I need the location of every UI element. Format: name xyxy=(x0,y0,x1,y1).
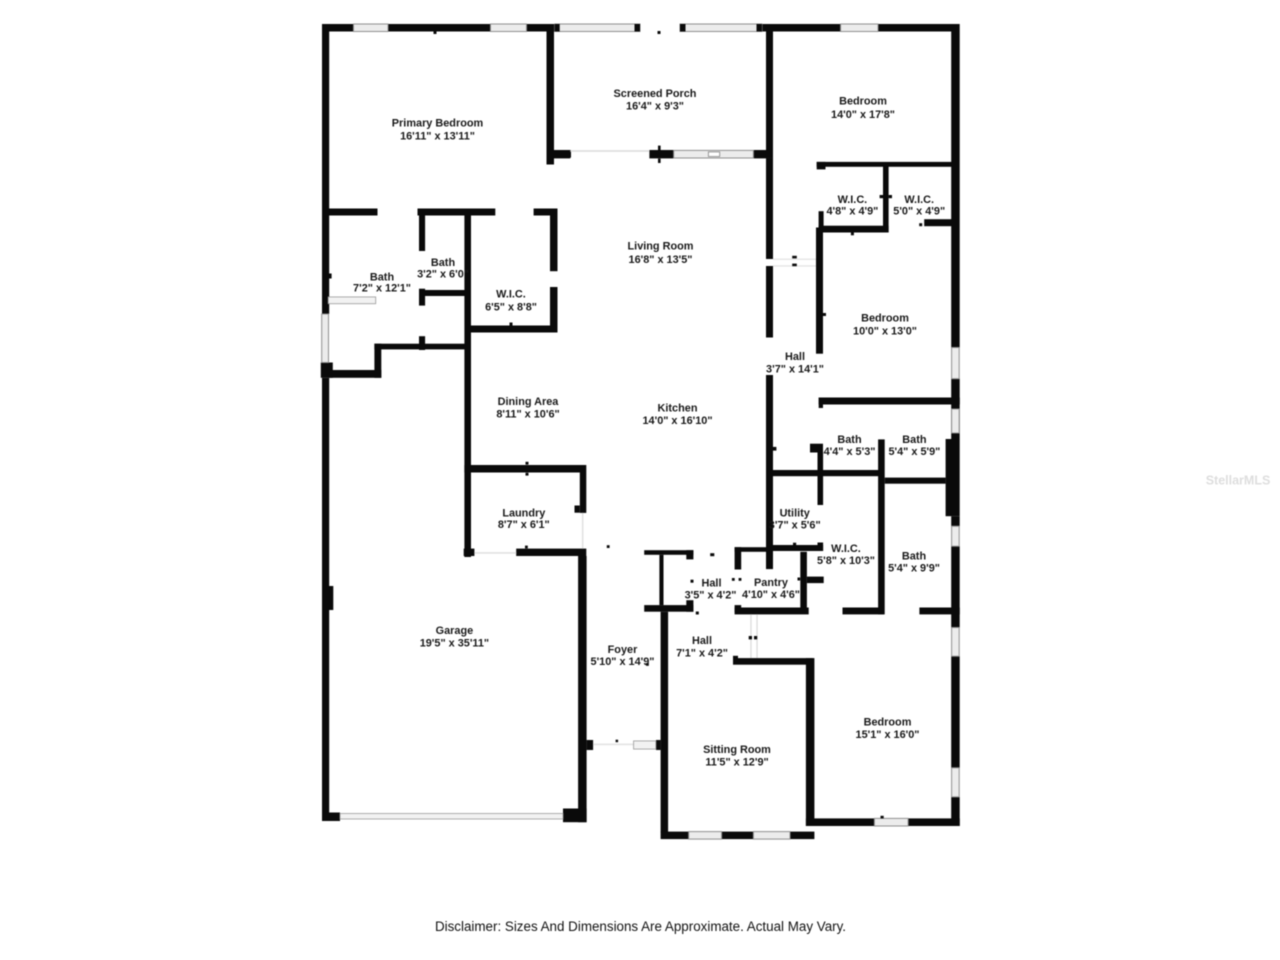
svg-text:Kitchen: Kitchen xyxy=(658,402,698,414)
svg-text:8'7" x 6'1": 8'7" x 6'1" xyxy=(498,519,550,531)
svg-text:5'4" x 9'9": 5'4" x 9'9" xyxy=(888,563,940,575)
svg-text:7'2" x 12'1": 7'2" x 12'1" xyxy=(353,283,411,295)
svg-text:14'0" x 17'8": 14'0" x 17'8" xyxy=(831,109,895,121)
svg-text:Screened Porch: Screened Porch xyxy=(614,88,697,100)
svg-text:5'0" x 4'9": 5'0" x 4'9" xyxy=(893,206,945,218)
svg-text:Bath: Bath xyxy=(431,257,455,269)
svg-text:Hall: Hall xyxy=(702,578,722,590)
svg-text:5'10" x 14'9": 5'10" x 14'9" xyxy=(591,656,655,668)
svg-text:Sitting Room: Sitting Room xyxy=(703,744,771,756)
svg-text:Bath: Bath xyxy=(902,434,926,446)
svg-text:Bath: Bath xyxy=(902,551,926,563)
svg-text:W.I.C.: W.I.C. xyxy=(831,543,861,555)
svg-text:W.I.C.: W.I.C. xyxy=(904,194,934,206)
svg-text:16'8" x 13'5": 16'8" x 13'5" xyxy=(629,254,693,266)
svg-text:3'5" x 4'2": 3'5" x 4'2" xyxy=(685,590,737,602)
svg-text:6'5" x 8'8": 6'5" x 8'8" xyxy=(485,302,537,314)
svg-text:4'4" x 5'3": 4'4" x 5'3" xyxy=(824,446,876,458)
svg-text:15'1" x 16'0": 15'1" x 16'0" xyxy=(856,729,920,741)
svg-text:11'5" x 12'9": 11'5" x 12'9" xyxy=(705,757,768,769)
svg-text:Hall: Hall xyxy=(785,351,805,363)
svg-text:StellarMLS: StellarMLS xyxy=(1206,474,1271,488)
svg-text:3'7" x 5'6": 3'7" x 5'6" xyxy=(769,520,821,532)
svg-text:Dining Area: Dining Area xyxy=(498,396,560,408)
svg-text:4'8" x 4'9": 4'8" x 4'9" xyxy=(826,206,878,218)
svg-text:16'4" x 9'3": 16'4" x 9'3" xyxy=(626,100,684,112)
svg-text:Bedroom: Bedroom xyxy=(839,96,887,108)
svg-text:W.I.C.: W.I.C. xyxy=(838,194,868,206)
svg-text:Laundry: Laundry xyxy=(502,508,545,520)
svg-text:8'11" x 10'6": 8'11" x 10'6" xyxy=(496,409,559,421)
svg-text:Garage: Garage xyxy=(436,625,474,637)
svg-text:Pantry: Pantry xyxy=(754,577,788,589)
svg-text:Hall: Hall xyxy=(692,635,712,647)
svg-text:4'10" x 4'6": 4'10" x 4'6" xyxy=(742,589,800,601)
svg-text:Bath: Bath xyxy=(837,434,861,446)
svg-text:Living Room: Living Room xyxy=(628,241,694,253)
svg-text:W.I.C.: W.I.C. xyxy=(496,289,526,301)
svg-text:19'5" x 35'11": 19'5" x 35'11" xyxy=(420,638,489,650)
svg-text:Foyer: Foyer xyxy=(608,644,638,656)
svg-text:Bedroom: Bedroom xyxy=(861,313,909,325)
svg-text:Disclaimer: Sizes And Dimensio: Disclaimer: Sizes And Dimensions Are App… xyxy=(435,919,846,934)
svg-text:Utility: Utility xyxy=(780,508,810,520)
svg-text:3'2" x 6'0": 3'2" x 6'0" xyxy=(417,269,469,281)
svg-text:10'0" x 13'0": 10'0" x 13'0" xyxy=(853,326,917,338)
svg-text:5'8" x 10'3": 5'8" x 10'3" xyxy=(817,555,875,567)
svg-text:3'7" x 14'1": 3'7" x 14'1" xyxy=(766,364,824,376)
svg-text:16'11" x 13'11": 16'11" x 13'11" xyxy=(400,130,475,142)
svg-text:7'1" x 4'2": 7'1" x 4'2" xyxy=(676,648,728,660)
svg-text:5'4" x 5'9": 5'4" x 5'9" xyxy=(888,446,940,458)
svg-text:14'0" x 16'10": 14'0" x 16'10" xyxy=(642,415,712,427)
svg-text:Bedroom: Bedroom xyxy=(864,717,912,729)
svg-text:Primary Bedroom: Primary Bedroom xyxy=(392,117,484,129)
